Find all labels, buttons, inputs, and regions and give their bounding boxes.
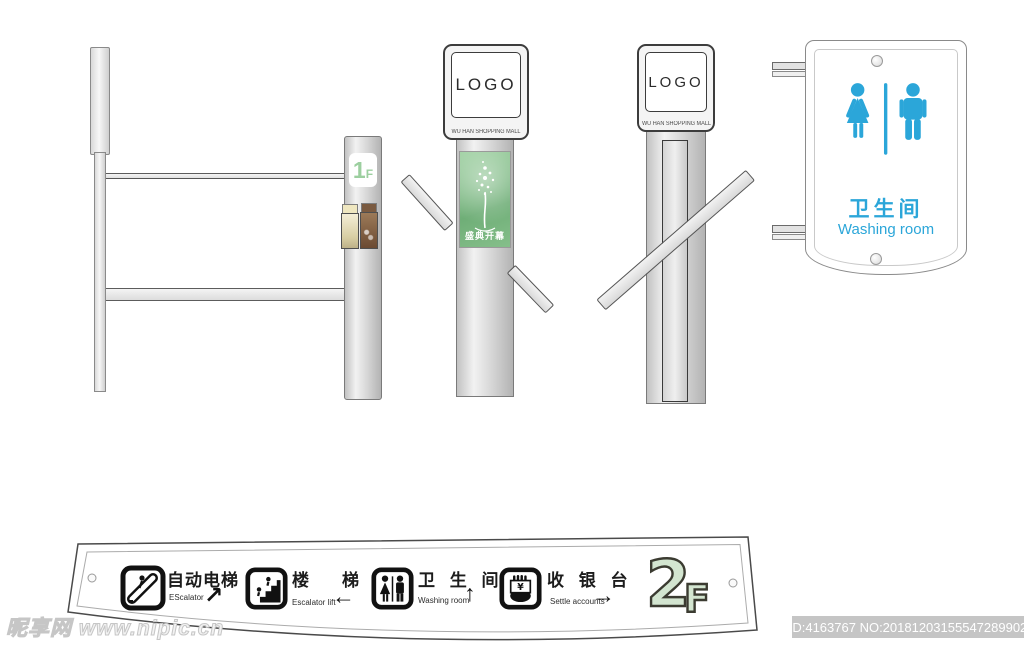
svg-text:¥: ¥ xyxy=(517,582,524,593)
directory-sub-washroom: Washing room xyxy=(418,596,469,605)
mini-poster-right xyxy=(360,212,378,249)
washroom-title-en: Washing room xyxy=(806,221,966,238)
logo-box-side: LOGO WU HAN SHOPPING MALL xyxy=(637,44,715,132)
directory-sub-escalator: EScalator xyxy=(169,593,204,602)
floor-2f-small: F xyxy=(684,580,710,618)
escalator-icon xyxy=(120,565,166,611)
poster-ornament-icon xyxy=(460,154,510,232)
directory-label-washroom: 卫 生 间 xyxy=(418,566,503,591)
poster-front: 盛典开幕 xyxy=(459,151,511,248)
pylon-side-slot xyxy=(662,140,688,402)
bottom-rail xyxy=(96,288,348,301)
signage-design-sheet: 1F 盛典开幕 xyxy=(0,0,1024,646)
arrow-up-right: ↗ xyxy=(204,584,223,607)
stairs-icon xyxy=(245,567,288,610)
logo-subtitle-side: WU HAN SHOPPING MALL xyxy=(642,121,710,127)
washroom-sign: 卫生间 Washing room xyxy=(770,36,970,286)
washroom-icon xyxy=(371,567,414,610)
turnstile-arm-left xyxy=(401,174,454,231)
arrow-up: ↑ xyxy=(464,582,476,605)
floor-1f-small: F xyxy=(366,167,373,181)
poster-caption: 盛典开幕 xyxy=(460,229,510,242)
washroom-panel: 卫生间 Washing room xyxy=(805,40,967,275)
blank-panel xyxy=(104,178,346,290)
restroom-figures-icon xyxy=(832,81,940,169)
directory-label-escalator: 自动电梯 xyxy=(167,566,239,591)
cashier-icon: ¥ xyxy=(499,567,542,610)
screw-bottom xyxy=(870,253,882,265)
washroom-title-cn: 卫生间 xyxy=(806,193,966,223)
screw-top xyxy=(871,55,883,67)
directory-sub-stairs: Escalator lift xyxy=(292,598,336,607)
floor-1f-big: 1 xyxy=(353,157,366,184)
arrow-right: → xyxy=(592,584,615,607)
mini-poster-left xyxy=(341,213,359,249)
directory-label-stairs: 楼 梯 xyxy=(292,566,367,591)
logo-text-front: LOGO xyxy=(455,75,516,95)
directory-label-cashier: 收 银 台 xyxy=(547,566,632,591)
image-id-bar: ID:4163767 NO:20181203155547289902 xyxy=(792,616,1024,638)
pole-cap xyxy=(90,47,110,155)
floor-1f-badge: 1F xyxy=(349,153,377,187)
arrow-left: ← xyxy=(332,585,355,608)
pylon-1f: 1F xyxy=(344,136,382,400)
logo-subtitle-front: WU HAN SHOPPING MALL xyxy=(448,129,523,135)
watermark-text: 昵享网 www.nipic.cn xyxy=(6,612,224,642)
logo-text-side: LOGO xyxy=(648,74,703,91)
pole xyxy=(94,152,106,392)
logo-box-front: LOGO WU HAN SHOPPING MALL xyxy=(443,44,529,140)
